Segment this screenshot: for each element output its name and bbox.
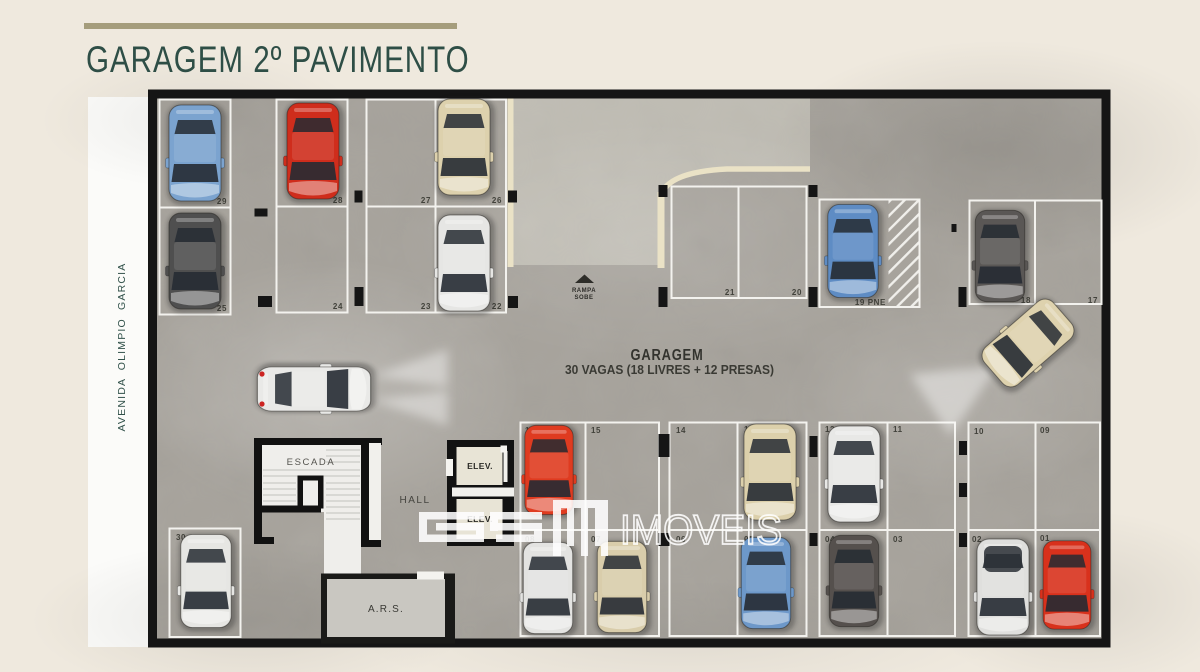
- svg-text:03: 03: [893, 535, 903, 544]
- svg-text:ESCADA: ESCADA: [287, 457, 336, 468]
- svg-text:10: 10: [974, 427, 984, 436]
- svg-text:A.R.S.: A.R.S.: [368, 604, 404, 615]
- svg-text:15: 15: [591, 426, 601, 435]
- svg-text:SOBE: SOBE: [574, 295, 593, 301]
- svg-text:IMOVEIS: IMOVEIS: [620, 506, 782, 553]
- svg-text:ELEV.: ELEV.: [467, 461, 493, 471]
- svg-text:26: 26: [492, 196, 502, 205]
- svg-text:30 VAGAS (18 LIVRES + 12 PRESA: 30 VAGAS (18 LIVRES + 12 PRESAS): [565, 362, 774, 377]
- svg-text:11: 11: [893, 425, 903, 434]
- svg-text:23: 23: [421, 302, 431, 311]
- svg-text:HALL: HALL: [399, 495, 430, 506]
- svg-text:09: 09: [1040, 426, 1050, 435]
- svg-text:27: 27: [421, 196, 431, 205]
- svg-text:21: 21: [725, 288, 735, 297]
- svg-text:RAMPA: RAMPA: [572, 288, 596, 294]
- svg-text:20: 20: [792, 288, 802, 297]
- svg-text:24: 24: [333, 302, 343, 311]
- svg-text:17: 17: [1088, 296, 1098, 305]
- svg-text:14: 14: [676, 426, 686, 435]
